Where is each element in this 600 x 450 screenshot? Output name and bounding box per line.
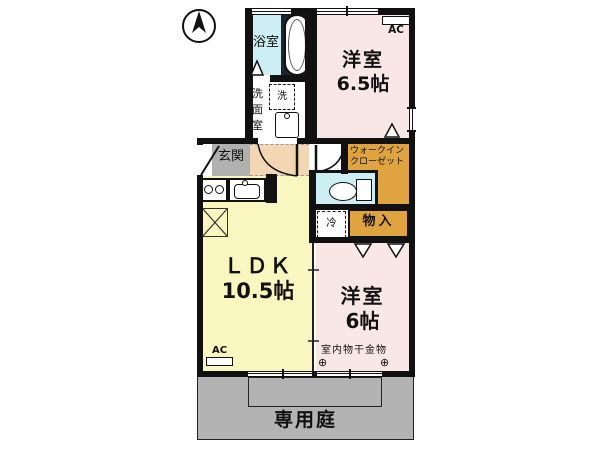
laundry-anchor-right: ⊕	[380, 357, 389, 369]
ac-label-ldk: AC	[206, 345, 233, 356]
kitchen-sink	[234, 184, 260, 199]
floor-hatch-box	[202, 208, 228, 237]
stove-burner-right	[215, 185, 224, 194]
ldk-name: ＬＤＫ	[203, 255, 313, 278]
toilet-door-arc	[316, 146, 344, 172]
wall-below-toilet	[309, 204, 415, 210]
bedroom-top-name: 洋室	[317, 50, 409, 71]
window-right-line	[412, 108, 413, 132]
compass	[182, 9, 216, 43]
storage-label: 物入	[348, 215, 409, 229]
ac-unit-ldk	[206, 357, 233, 366]
wall-below-storage	[309, 237, 415, 243]
laundry-hardware-note: 室内物干金物	[321, 345, 387, 356]
wic-label-line1: ウォークイン	[346, 147, 408, 157]
ac-label-bedroom-top: AC	[382, 25, 410, 37]
fridge-label: 冷	[317, 218, 346, 230]
toilet-vestibule	[309, 144, 316, 170]
garden-label: 専用庭	[197, 410, 414, 431]
entrance-label: 玄関	[212, 150, 250, 164]
bedroom-bottom-name: 洋室	[316, 285, 409, 307]
window-bedroom-top-tick	[346, 6, 348, 16]
ldk-size: 10.5帖	[203, 280, 313, 303]
washroom-door-gap	[258, 138, 297, 144]
bath-door-gap	[253, 75, 270, 82]
washroom-label: 洗面室	[252, 86, 266, 134]
wall-middle	[197, 138, 415, 144]
window-right-tick-top	[407, 107, 416, 109]
window-bedroom-bottom-tick	[349, 369, 351, 379]
bedroom-top-size: 6.5帖	[317, 74, 409, 95]
window-ldk-bottom-line	[248, 373, 312, 374]
wic-label-line2: クローゼット	[346, 158, 408, 168]
toilet-bowl	[329, 182, 357, 201]
bathtub-inner	[288, 19, 306, 71]
bedroom-bottom-size: 6帖	[316, 310, 409, 332]
window-right-tick-bottom	[407, 130, 416, 132]
toilet-tank	[356, 179, 372, 201]
stove-burner-left	[204, 185, 213, 194]
wall-kitchen-stub	[266, 174, 277, 203]
laundry-anchor-left: ⊕	[318, 357, 327, 369]
window-bath-top-line	[252, 11, 291, 12]
corridor-floor	[250, 144, 309, 176]
wall-right	[409, 8, 415, 377]
washer-label: 洗	[269, 91, 295, 102]
kitchen-faucet	[242, 180, 248, 186]
wall-bath-right	[305, 8, 317, 144]
washroom-faucet	[284, 113, 290, 119]
bathroom-label: 浴室	[253, 36, 279, 50]
entrance-door-gap	[197, 145, 203, 175]
terrace-outline	[248, 377, 382, 407]
floor-plan: AC AC 浴室 洗面室 洗 洋室 6.5帖 玄関 ウォークイン クローゼット …	[0, 0, 600, 450]
entry-white-strip	[203, 144, 212, 176]
window-ldk-bottom-tick	[282, 369, 284, 379]
